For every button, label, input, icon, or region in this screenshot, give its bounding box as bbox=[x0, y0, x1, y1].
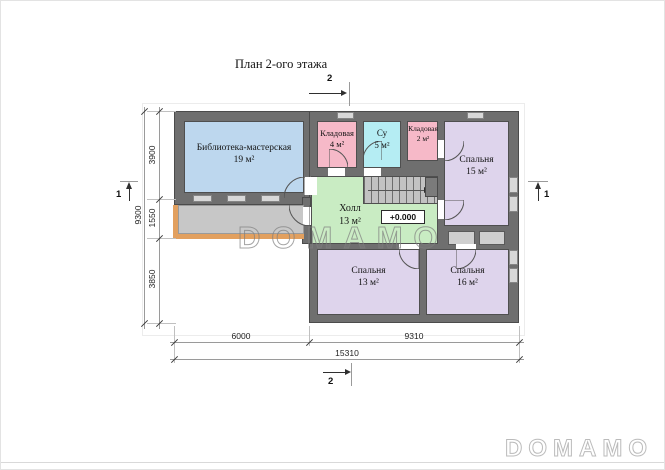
door-gap-bathroom bbox=[364, 168, 381, 176]
window-bedroom16-2 bbox=[509, 268, 518, 283]
ext-line bbox=[147, 323, 176, 324]
window-top-2 bbox=[467, 112, 484, 119]
label-hall-name: Холл bbox=[319, 202, 381, 215]
dim-line-left-total bbox=[144, 107, 145, 329]
floor-plan-page: План 2-ого этажа bbox=[0, 0, 665, 470]
door-arc-library-icon bbox=[284, 177, 305, 198]
label-bedroom-15: Спальня 15 м² bbox=[444, 154, 509, 179]
vent-shaft bbox=[425, 177, 438, 197]
label-storage-2-area: 2 м² bbox=[403, 134, 443, 144]
dim-left-total-9300: 9300 bbox=[133, 195, 143, 235]
label-storage-2: Кладовая 2 м² bbox=[403, 124, 443, 144]
section-arrow-top-icon bbox=[341, 90, 347, 96]
section-marker-right: 1 bbox=[544, 189, 549, 200]
ext-line bbox=[147, 238, 176, 239]
window-library-2 bbox=[227, 195, 246, 202]
label-storage-4-name: Кладовая bbox=[317, 128, 357, 139]
section-arrow-left-icon bbox=[126, 182, 132, 189]
label-library-name: Библиотека-мастерская bbox=[184, 142, 304, 154]
label-bathroom-name: Су bbox=[363, 128, 401, 140]
window-top-1 bbox=[337, 112, 354, 119]
closet-left bbox=[448, 231, 475, 245]
label-bedroom-13: Спальня 13 м² bbox=[317, 265, 420, 290]
label-storage-4-area: 4 м² bbox=[317, 139, 357, 150]
section-arrow-top-line bbox=[309, 93, 343, 94]
window-bedroom15-2 bbox=[509, 196, 518, 212]
section-marker-top: 2 bbox=[327, 73, 332, 84]
label-bedroom-16-area: 16 м² bbox=[426, 277, 509, 289]
dim-bottom-9310: 9310 bbox=[389, 331, 439, 341]
label-bedroom-15-name: Спальня bbox=[444, 154, 509, 166]
section-marker-left: 1 bbox=[116, 189, 121, 200]
door-arc-bedroom-15-icon bbox=[444, 200, 464, 220]
dim-left-3850: 3850 bbox=[147, 259, 157, 299]
watermark-corner: DOMAMO bbox=[505, 437, 653, 461]
label-library-area: 19 м² bbox=[184, 154, 304, 166]
door-gap-library bbox=[304, 177, 317, 195]
section-cut-line-bottom bbox=[351, 363, 352, 386]
label-storage-4: Кладовая 4 м² bbox=[317, 128, 357, 150]
label-bathroom: Су 5 м² bbox=[363, 128, 401, 151]
door-arc-storage-4-icon bbox=[329, 149, 348, 168]
ext-line bbox=[147, 111, 176, 112]
stair-direction-line bbox=[368, 190, 426, 191]
label-library: Библиотека-мастерская 19 м² bbox=[184, 142, 304, 167]
page-bottom-rule bbox=[1, 462, 665, 463]
window-library-3 bbox=[261, 195, 280, 202]
section-arrow-bottom-line bbox=[323, 372, 347, 373]
dim-bottom-6000: 6000 bbox=[216, 331, 266, 341]
dim-line-bottom-total bbox=[170, 359, 524, 360]
dim-bottom-total-15310: 15310 bbox=[317, 348, 377, 358]
dim-line-left-chain bbox=[159, 107, 160, 329]
window-bedroom15-1 bbox=[509, 177, 518, 193]
label-bedroom-13-area: 13 м² bbox=[317, 277, 420, 289]
label-bedroom-16: Спальня 16 м² bbox=[426, 265, 509, 290]
page-title: План 2-ого этажа bbox=[235, 57, 327, 72]
door-gap-storage-4 bbox=[328, 168, 345, 176]
label-bedroom-15-area: 15 м² bbox=[444, 166, 509, 178]
section-arrow-bottom-icon bbox=[345, 369, 351, 375]
window-library-1 bbox=[193, 195, 212, 202]
dim-left-3900: 3900 bbox=[147, 135, 157, 175]
closet-right bbox=[479, 231, 505, 245]
dim-left-1550: 1550 bbox=[147, 198, 157, 238]
dim-line-bottom-chain bbox=[170, 342, 524, 343]
label-storage-2-name: Кладовая bbox=[403, 124, 443, 134]
label-bedroom-13-name: Спальня bbox=[317, 265, 420, 277]
window-bedroom16-1 bbox=[509, 250, 518, 265]
section-marker-bottom: 2 bbox=[328, 376, 333, 387]
watermark-center: DOMAMO bbox=[238, 222, 449, 253]
label-bedroom-16-name: Спальня bbox=[426, 265, 509, 277]
section-cut-line-top bbox=[349, 82, 350, 106]
label-bathroom-area: 5 м² bbox=[363, 140, 401, 152]
section-arrow-right-icon bbox=[535, 182, 541, 189]
